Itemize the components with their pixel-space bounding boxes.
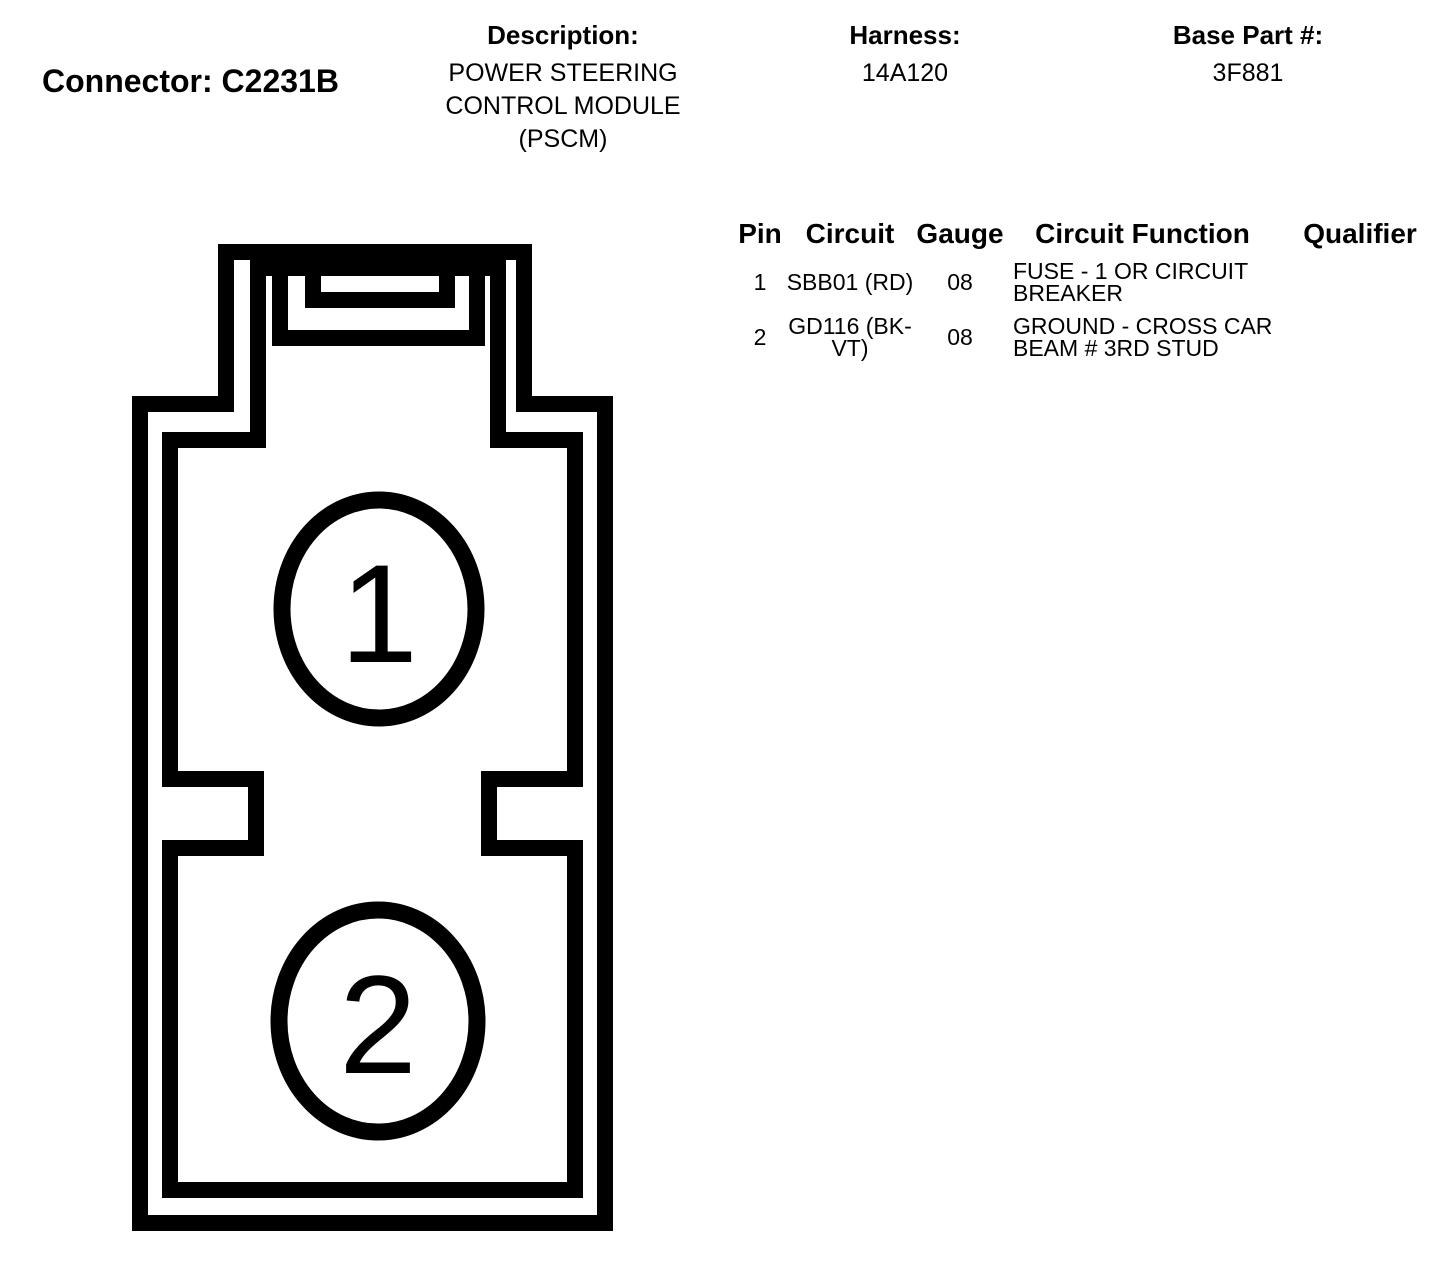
page: Connector: C2231B Description: POWER STE… xyxy=(0,0,1456,1272)
pin-2-number: 2 xyxy=(339,946,417,1103)
connector-diagram: 1 2 xyxy=(0,0,1456,1272)
pin-1-number: 1 xyxy=(340,535,418,692)
